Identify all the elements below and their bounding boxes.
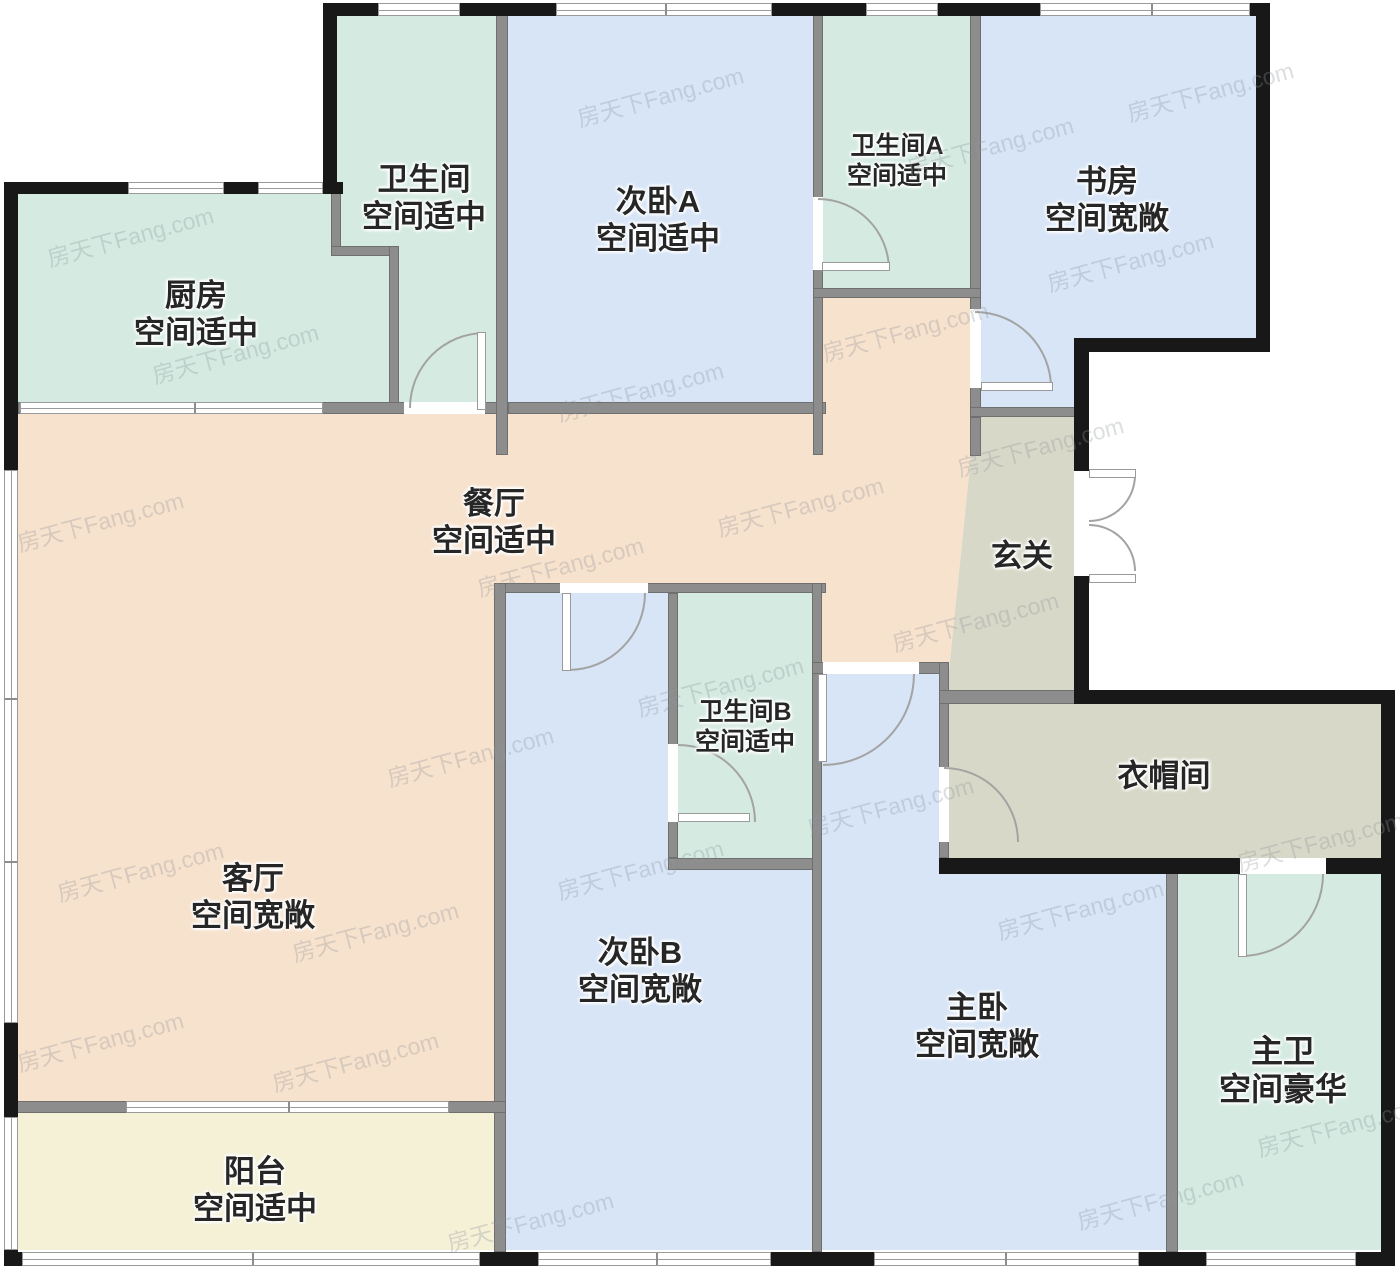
window-glazing-line — [11, 471, 12, 1022]
label-living: 客厅空间宽敞 — [191, 860, 315, 934]
floor-plan-canvas: 厨房空间适中卫生间空间适中次卧A空间适中卫生间A空间适中书房空间宽敞餐厅空间适中… — [0, 0, 1400, 1269]
label-study: 书房空间宽敞 — [1045, 163, 1169, 237]
window-glazing-line — [867, 10, 937, 11]
label-master-bathroom-line-1: 主卫 — [1219, 1032, 1347, 1070]
study-door-leaf — [981, 382, 1053, 391]
label-living-line-2: 空间宽敞 — [191, 897, 315, 934]
interior-wall-11 — [494, 583, 826, 593]
interior-wall-18 — [1166, 862, 1178, 1252]
entry-door-arc-bottom — [1089, 524, 1136, 571]
interior-wall-2 — [389, 246, 399, 412]
exterior-wall-10 — [1381, 690, 1395, 1266]
exterior-wall-5 — [1256, 3, 1270, 352]
entry-door-leaf-top — [1089, 469, 1136, 478]
interior-wall-0 — [331, 192, 341, 251]
bedroom-b-door-gap — [560, 583, 648, 593]
master-door-gap — [823, 662, 919, 674]
label-bathroom-b: 卫生间B空间适中 — [695, 697, 795, 757]
window-glazing-line — [1207, 1259, 1355, 1260]
exterior-wall-7 — [1074, 338, 1089, 471]
window-mullion — [5, 698, 17, 700]
label-bedroom-b-line-2: 空间宽敞 — [578, 971, 702, 1008]
master-bath-door-gap — [1240, 858, 1326, 874]
label-master-bathroom: 主卫空间豪华 — [1219, 1032, 1347, 1108]
window-top-bedroom-a — [556, 3, 772, 16]
bathroom-b-door-leaf — [678, 813, 750, 822]
exterior-wall-4 — [323, 3, 337, 193]
entry-door-gap — [1074, 471, 1089, 576]
exterior-wall-9 — [1074, 690, 1395, 704]
window-glazing-line — [539, 1259, 770, 1260]
window-bottom-master-bath — [1206, 1252, 1356, 1266]
entry-door-leaf-bottom — [1089, 574, 1136, 583]
interior-wall-7 — [496, 14, 508, 455]
window-kitchen-bottom — [20, 402, 323, 414]
exterior-wall-6 — [1077, 338, 1270, 352]
label-dining-line-1: 餐厅 — [432, 485, 556, 522]
window-glazing-line — [23, 1259, 479, 1260]
label-kitchen-line-2: 空间适中 — [134, 314, 258, 351]
exterior-wall-12 — [1326, 858, 1395, 874]
label-closet-line-1: 衣帽间 — [1118, 758, 1211, 795]
label-master-bathroom-line-2: 空间豪华 — [1219, 1070, 1347, 1108]
exterior-wall-8 — [1074, 576, 1089, 694]
window-mullion — [288, 1102, 290, 1112]
label-living-line-1: 客厅 — [191, 860, 315, 897]
bedroom-b-door-leaf — [562, 593, 571, 671]
label-balcony-line-1: 阳台 — [193, 1153, 317, 1190]
window-kitchen-top-2 — [258, 182, 323, 194]
label-kitchen-line-1: 厨房 — [134, 277, 258, 314]
window-top-study — [1040, 3, 1250, 16]
interior-wall-4 — [508, 402, 826, 414]
interior-wall-9 — [813, 288, 981, 298]
label-bathroom-b-line-2: 空间适中 — [695, 727, 795, 757]
label-closet: 衣帽间 — [1118, 758, 1211, 795]
label-bathroom-b-line-1: 卫生间B — [695, 697, 795, 727]
window-mullion — [665, 4, 667, 15]
window-glazing-line — [11, 1118, 12, 1249]
interior-wall-20 — [939, 690, 1079, 704]
label-dining-line-2: 空间适中 — [432, 522, 556, 559]
window-bottom-master — [874, 1252, 1139, 1266]
window-glazing-line — [1041, 10, 1249, 11]
label-bathroom-a-line-1: 卫生间A — [847, 131, 947, 161]
label-bedroom-a-line-2: 空间适中 — [596, 220, 720, 257]
interior-wall-12 — [494, 583, 506, 1252]
window-mullion — [1151, 4, 1153, 15]
label-bedroom-a: 次卧A空间适中 — [596, 183, 720, 257]
label-kitchen: 厨房空间适中 — [134, 277, 258, 351]
label-bedroom-b-line-1: 次卧B — [578, 934, 702, 971]
label-bathroom-top-line-2: 空间适中 — [362, 198, 486, 235]
label-bathroom-top-line-1: 卫生间 — [362, 161, 486, 198]
window-glazing-line — [21, 408, 322, 409]
label-hallway-line-1: 玄关 — [991, 538, 1053, 575]
bathroom-b-door-gap — [668, 744, 678, 822]
label-master-bedroom-line-1: 主卧 — [915, 989, 1039, 1026]
window-mullion — [5, 861, 17, 863]
label-bathroom-a: 卫生间A空间适中 — [847, 131, 947, 191]
window-mullion — [194, 403, 196, 413]
label-balcony: 阳台空间适中 — [193, 1153, 317, 1227]
window-mullion — [252, 1253, 254, 1265]
window-bottom-bedroom-b — [538, 1252, 771, 1266]
window-mullion — [656, 1253, 658, 1265]
label-bathroom-top: 卫生间空间适中 — [362, 161, 486, 235]
label-hallway: 玄关 — [991, 538, 1053, 575]
master-bath-door-leaf — [1238, 874, 1247, 957]
interior-wall-14 — [668, 858, 822, 870]
window-top-bath-a — [866, 3, 938, 16]
window-kitchen-top-1 — [128, 182, 224, 194]
label-bedroom-a-line-1: 次卧A — [596, 183, 720, 220]
entry-door-arc-top — [1089, 475, 1136, 522]
bathroom-top-door-leaf — [477, 332, 486, 410]
interior-wall-10 — [970, 407, 1089, 417]
label-balcony-line-2: 空间适中 — [193, 1190, 317, 1227]
bathroom-a-door-leaf — [822, 262, 890, 271]
label-master-bedroom: 主卧空间宽敞 — [915, 989, 1039, 1063]
window-glazing-line — [259, 188, 322, 189]
label-study-line-2: 空间宽敞 — [1045, 200, 1169, 237]
label-dining: 餐厅空间适中 — [432, 485, 556, 559]
label-bathroom-a-line-2: 空间适中 — [847, 161, 947, 191]
window-balcony-divider — [126, 1101, 449, 1113]
interior-wall-6 — [970, 417, 981, 456]
master-door-leaf — [818, 674, 827, 762]
window-glazing-line — [129, 188, 223, 189]
window-left-living — [4, 470, 18, 1023]
window-glazing-line — [557, 10, 771, 11]
exterior-wall-11 — [939, 858, 1240, 874]
window-glazing-line — [379, 10, 459, 11]
label-study-line-1: 书房 — [1045, 163, 1169, 200]
label-bedroom-b: 次卧B空间宽敞 — [578, 934, 702, 1008]
window-mullion — [1005, 1253, 1007, 1265]
window-left-balcony — [4, 1117, 18, 1250]
label-master-bedroom-line-2: 空间宽敞 — [915, 1026, 1039, 1063]
window-bottom-balcony — [22, 1252, 480, 1266]
window-top-bath — [378, 3, 460, 16]
